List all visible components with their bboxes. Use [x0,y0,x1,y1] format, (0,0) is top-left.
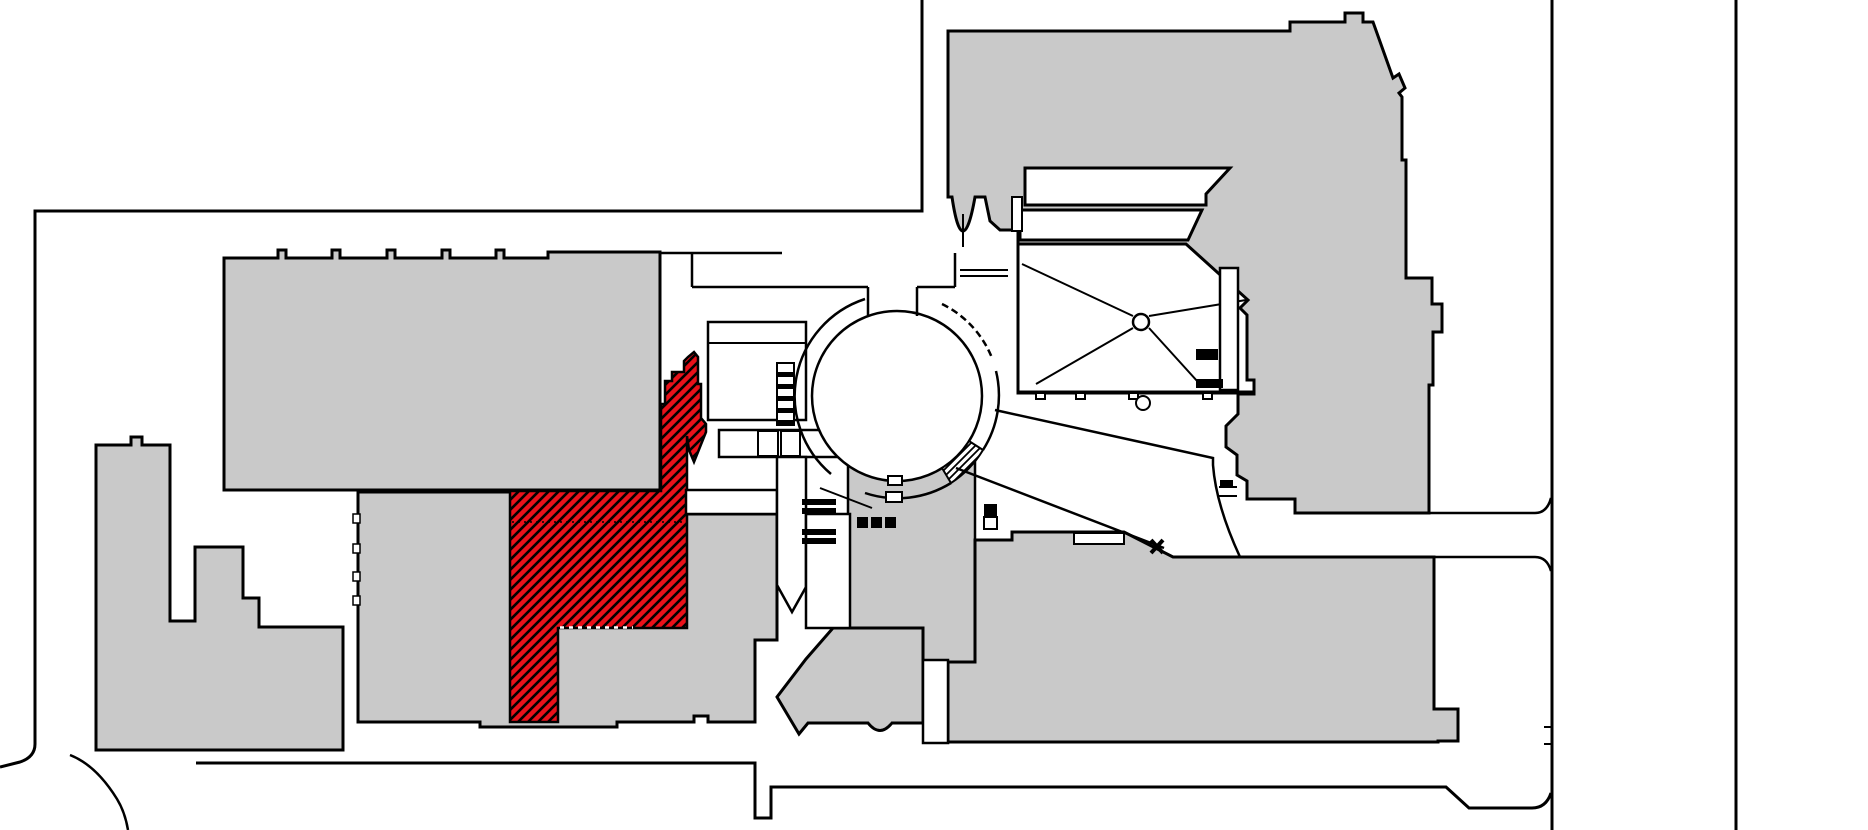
site-boundary-south [196,763,1551,818]
southeast-stair-block [984,504,997,517]
southeast-stair-landing [984,517,997,529]
south-corridor-band [686,490,777,514]
courtyard-closet [1012,197,1022,231]
site-path-curve-sw [70,755,128,830]
south-lightwell-slot [777,457,806,612]
plan-shapes-layer [0,0,1736,830]
courtyard-band-upper [1025,168,1230,205]
radial-hall-hub [1133,314,1149,330]
rotunda-inner-tab [888,476,902,485]
courtyard-stair-block-2 [1196,379,1223,388]
courtyard-band-lower [1020,210,1202,240]
east-corridor-upper-line [1429,498,1551,513]
southwest-rotunda-rooms [758,431,800,456]
rotunda-south-tab [886,492,902,502]
courtyard-east-corridor [1220,268,1238,390]
south-stair-squares [857,517,896,528]
southeast-skylight [1074,533,1124,544]
building-south-mid [777,628,923,734]
building-southeast-wing [948,532,1458,742]
corridor-bridge-lines [1219,487,1237,496]
corridor-bridge-door [1220,480,1233,487]
building-west-wing [224,250,660,490]
floor-plan-canvas [0,0,1868,830]
lightwell-between-wings [923,660,948,743]
east-corridor-lower-line [1434,557,1551,571]
north-room-walls [660,253,955,316]
courtyard-stair-block-1 [1196,349,1218,360]
hall-south-pier [1136,396,1150,410]
floor-plan-page [0,0,1868,830]
